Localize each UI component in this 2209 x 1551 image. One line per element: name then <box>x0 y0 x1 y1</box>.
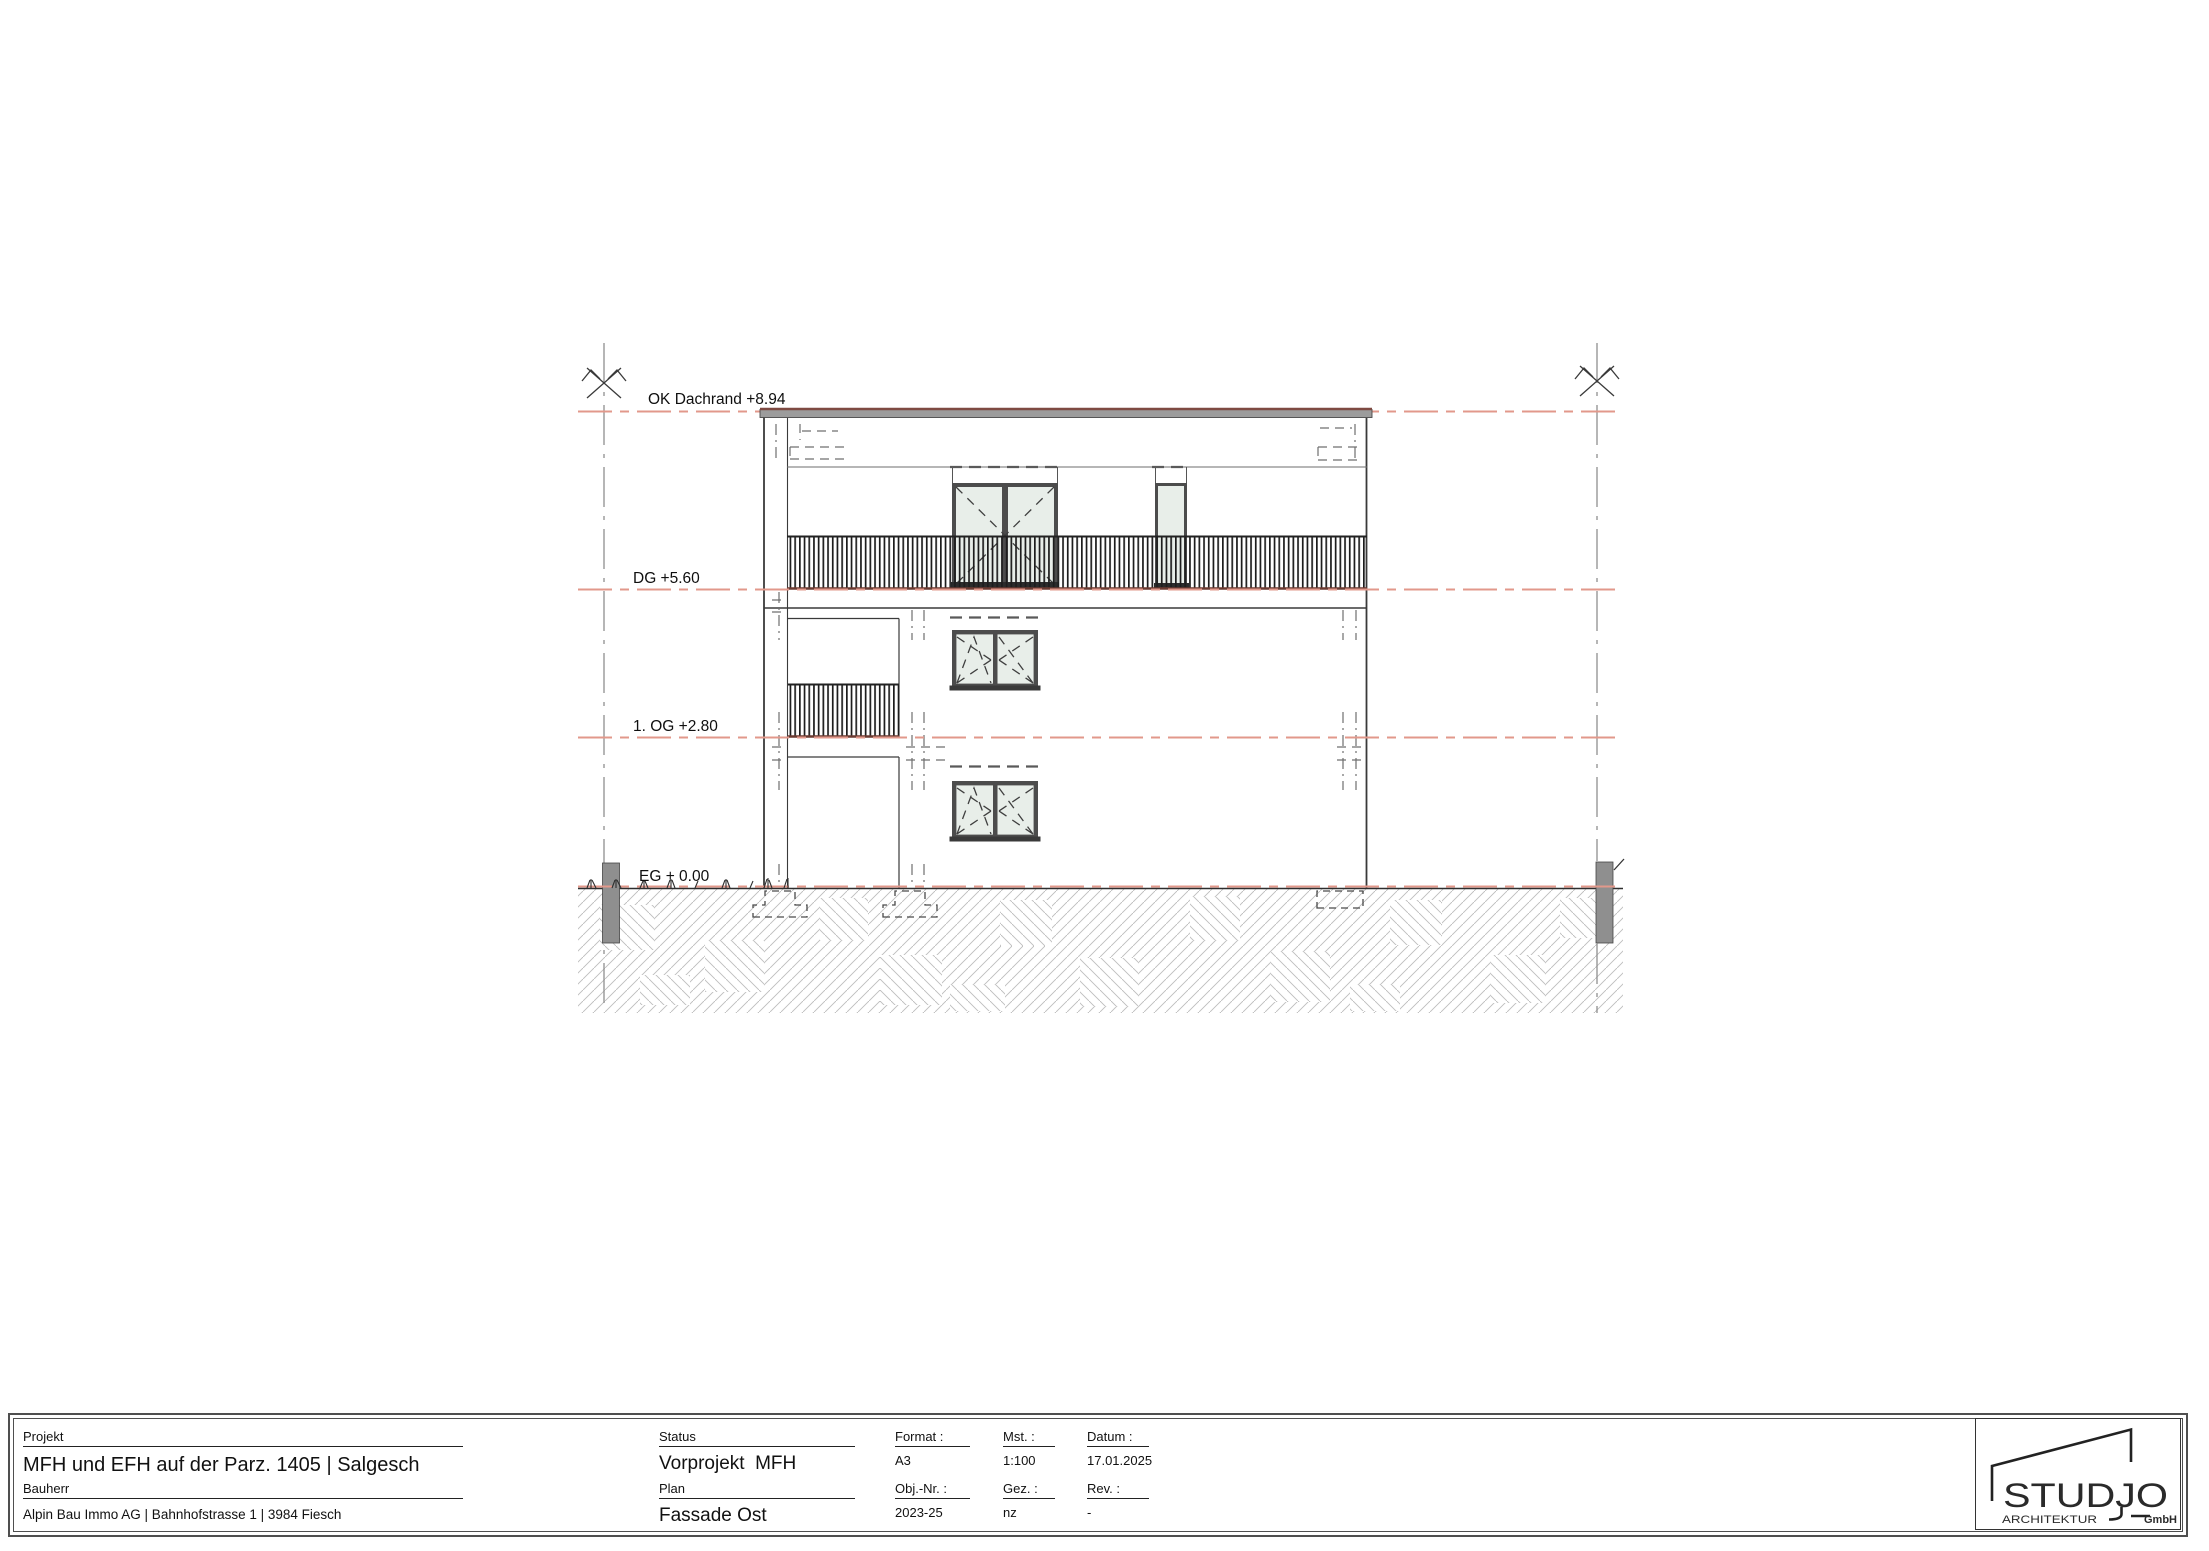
bauherr-label: Bauherr <box>23 1481 463 1499</box>
rev-label: Rev. : <box>1087 1481 1149 1499</box>
format-label: Format : <box>895 1429 970 1447</box>
objnr-value: 2023-25 <box>895 1505 943 1521</box>
building-elevation <box>753 409 1367 917</box>
objnr-label: Obj.-Nr. : <box>895 1481 970 1499</box>
roof-slab <box>760 409 1372 418</box>
loggia-eg <box>788 757 899 888</box>
bollard-right <box>1596 862 1613 943</box>
window-eg <box>950 781 1041 842</box>
balcony-railing-og <box>788 685 899 737</box>
bollard-left <box>603 863 620 943</box>
level-label-eg: EG + 0.00 <box>639 868 710 885</box>
datum-value: 17.01.2025 <box>1087 1453 1152 1469</box>
format-value: A3 <box>895 1453 911 1469</box>
level-label-og: 1. OG +2.80 <box>633 718 718 735</box>
mst-label: Mst. : <box>1003 1429 1055 1447</box>
elevation-drawing: OK Dachrand +8.94 DG +5.60 1. OG +2.80 E… <box>0 0 2209 1551</box>
plan-label: Plan <box>659 1481 855 1499</box>
studjo-logo-icon: STUDJO ARCHITEKTUR GmbH <box>1976 1419 2179 1528</box>
level-label-dg: DG +5.60 <box>633 570 700 587</box>
drawing-sheet: OK Dachrand +8.94 DG +5.60 1. OG +2.80 E… <box>0 0 2209 1551</box>
plan-value: Fassade Ost <box>659 1504 767 1527</box>
bauherr-value: Alpin Bau Immo AG | Bahnhofstrasse 1 | 3… <box>23 1507 341 1523</box>
level-label-dachrand: OK Dachrand +8.94 <box>648 391 786 408</box>
mst-value: 1:100 <box>1003 1453 1036 1469</box>
level-labels: OK Dachrand +8.94 DG +5.60 1. OG +2.80 E… <box>633 391 786 885</box>
title-block: Projekt MFH und EFH auf der Parz. 1405 |… <box>8 1413 2188 1537</box>
window-og <box>950 630 1041 691</box>
projekt-label: Projekt <box>23 1429 463 1447</box>
logo-tagline: ARCHITEKTUR <box>2002 1514 2097 1526</box>
projekt-value: MFH und EFH auf der Parz. 1405 | Salgesc… <box>23 1453 420 1477</box>
datum-label: Datum : <box>1087 1429 1149 1447</box>
gez-label: Gez. : <box>1003 1481 1055 1499</box>
gez-value: nz <box>1003 1505 1017 1521</box>
hidden-line-marks <box>772 424 1367 887</box>
terrace-railing-dg <box>787 537 1367 589</box>
architect-logo-cell: STUDJO ARCHITEKTUR GmbH <box>1975 1418 2181 1530</box>
status-label: Status <box>659 1429 855 1447</box>
logo-legal-suffix: GmbH <box>2144 1514 2177 1526</box>
status-value: Vorprojekt MFH <box>659 1452 796 1475</box>
rev-value: - <box>1087 1505 1091 1521</box>
logo-wordmark: STUDJO <box>2003 1477 2168 1515</box>
level-lines <box>578 412 1623 887</box>
ground-hatch <box>578 889 1623 1014</box>
bollard-right-tick <box>1614 859 1624 870</box>
